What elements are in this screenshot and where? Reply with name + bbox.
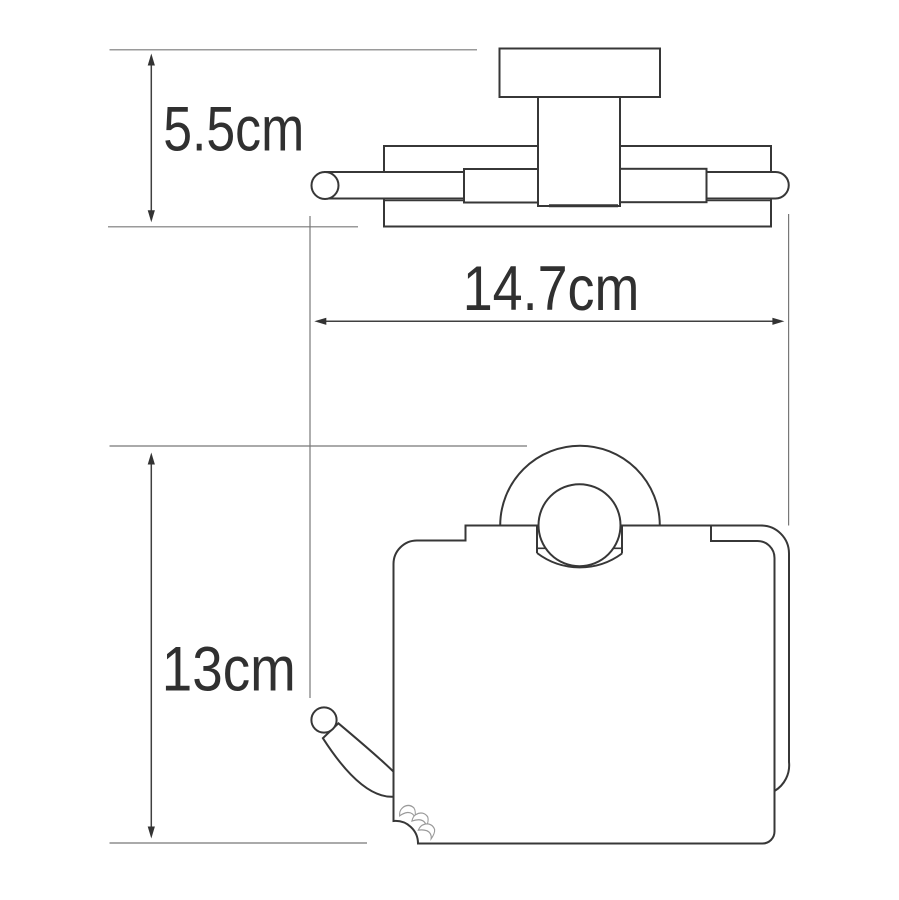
svg-text:14.7cm: 14.7cm [463, 254, 640, 324]
svg-text:5.5cm: 5.5cm [163, 95, 304, 165]
svg-text:13cm: 13cm [162, 634, 296, 704]
